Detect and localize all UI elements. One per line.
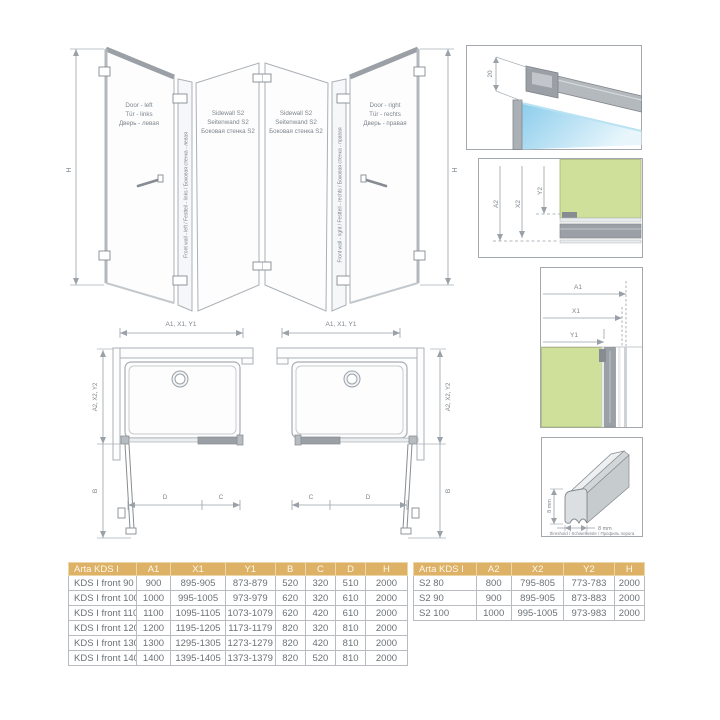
- header-cell: A2: [476, 563, 511, 576]
- svg-text:Боковая стенка S2: Боковая стенка S2: [269, 128, 323, 135]
- threshold-caption: threshold / Schwellleiste / Профиль поро…: [550, 531, 635, 536]
- detail-front-section: A1 X1 Y1: [540, 267, 643, 428]
- door-labels: Door - right Tür - rechts Дверь - правая: [363, 102, 406, 127]
- h-label: H: [452, 167, 459, 172]
- wall-green: [560, 160, 641, 219]
- table-row: KDS I front 90900895-905873-879520320510…: [69, 576, 408, 591]
- header-cell: D: [336, 563, 366, 576]
- glass-clamp-bottom: [173, 276, 187, 285]
- wall-return: [242, 358, 253, 364]
- header-cell: Arta KDS I: [414, 563, 477, 576]
- svg-text:Tür - links: Tür - links: [125, 111, 152, 118]
- table-header-row: Arta KDS I A2 X2 Y2 H: [414, 563, 645, 576]
- table-row: KDS I front 11011001095-11051073-1079620…: [69, 606, 408, 621]
- d-label: D: [163, 494, 168, 501]
- door-handle: [412, 508, 419, 518]
- diagram-plan-door-left: A1, X1, Y1: [85, 316, 270, 556]
- glass-clamp-bottom: [337, 276, 351, 285]
- dc-dimension: D C: [128, 494, 240, 510]
- glass-edge: [624, 348, 627, 428]
- detail-top-brace: 20: [466, 45, 642, 150]
- diagram-enclosure-door-right: Sidewall S2 Seitenwand S2 Боковая стенка…: [262, 36, 462, 321]
- table-row: KDS I front 14014001395-14051373-1379820…: [69, 651, 408, 666]
- h-dimension: H: [66, 49, 104, 285]
- c-label: C: [219, 494, 224, 501]
- gap-label: 20: [487, 70, 494, 78]
- b-label: B: [92, 489, 99, 493]
- glass-clamp-top: [337, 94, 351, 103]
- table-front-models: Arta KDS I A1 X1 Y1 B C D H KDS I front …: [68, 562, 408, 666]
- fixed-panel-profile: [198, 437, 241, 444]
- hinge-bottom: [99, 251, 110, 260]
- height-label: 8 mm: [547, 499, 553, 513]
- side-wall: [113, 348, 120, 460]
- width-dim-label: A1, X1, Y1: [166, 321, 197, 328]
- diagram-enclosure-door-left: H Door - left Tür - links Дверь - левая …: [62, 36, 262, 321]
- door-handle: [118, 508, 125, 518]
- svg-text:Door - left: Door - left: [125, 102, 152, 109]
- b-dimension: B: [92, 444, 131, 538]
- x1-label: X1: [572, 308, 580, 315]
- depth-dim-label: A2, X2, Y2: [93, 382, 99, 411]
- table-row: KDS I front 1001000995-1005973-979620320…: [69, 591, 408, 606]
- rail-bottom: [560, 240, 641, 243]
- corner-profile: [237, 435, 243, 445]
- wall-bracket-bottom: [253, 262, 262, 270]
- svg-text:Sidewall S2: Sidewall S2: [280, 110, 313, 117]
- hinge-bottom: [414, 251, 425, 260]
- header-cell: Y2: [564, 563, 614, 576]
- rail-right: [618, 348, 621, 428]
- sidewall-panel: [196, 63, 259, 311]
- hinge-block: [121, 436, 129, 444]
- fixed-panel-profile: [297, 437, 340, 444]
- drain: [172, 371, 188, 387]
- wall-profile: [513, 100, 522, 150]
- width-dimension: [282, 328, 400, 338]
- back-wall: [277, 348, 417, 358]
- width-dim-label: A1, X1, Y1: [326, 321, 357, 328]
- depth-dim-label: A2, X2, Y2: [446, 382, 452, 411]
- sidewall-panel: [265, 63, 328, 311]
- corner-profile: [295, 435, 301, 445]
- header-cell: H: [365, 563, 407, 576]
- wall-bracket-top: [253, 74, 262, 82]
- wall-bracket-top: [262, 74, 271, 82]
- y2-label: Y2: [537, 187, 544, 195]
- table-row: KDS I front 12012001195-12051173-1179820…: [69, 621, 408, 636]
- hinge-block: [409, 436, 417, 444]
- bottom-profile: [560, 224, 641, 238]
- svg-text:Door - right: Door - right: [370, 102, 401, 109]
- h-dimension: H: [420, 49, 459, 285]
- hinge-top: [414, 67, 425, 76]
- y1-label: Y1: [570, 332, 578, 339]
- profile-tab: [599, 349, 606, 362]
- svg-text:Дверь - левая: Дверь - левая: [119, 120, 159, 127]
- x2-label: X2: [515, 200, 522, 208]
- h-label: H: [66, 167, 73, 172]
- header-cell: B: [275, 563, 305, 576]
- drain: [344, 371, 360, 387]
- header-cell: X2: [511, 563, 563, 576]
- svg-text:Seitenwand S2: Seitenwand S2: [207, 119, 249, 126]
- svg-text:Дверь - правая: Дверь - правая: [363, 120, 406, 127]
- header-cell: C: [305, 563, 336, 576]
- open-door: [118, 444, 136, 534]
- door-panel: [350, 49, 418, 303]
- open-door: [401, 444, 419, 534]
- front-wall-label: Front wall - left / Festteil - links / Б…: [184, 132, 190, 258]
- a2-label: A2: [493, 200, 500, 208]
- header-cell: A1: [136, 563, 171, 576]
- side-wall: [417, 348, 424, 460]
- table-row: KDS I front 13013001295-13051273-1279820…: [69, 636, 408, 651]
- svg-text:Tür - rechts: Tür - rechts: [369, 111, 401, 118]
- wall-green: [542, 348, 602, 428]
- header-cell: H: [614, 563, 644, 576]
- svg-text:Seitenwand S2: Seitenwand S2: [275, 119, 317, 126]
- shower-enclosure-spec-sheet: H Door - left Tür - links Дверь - левая …: [0, 0, 720, 720]
- hinge-top: [99, 67, 110, 76]
- header-cell: Arta KDS I: [69, 563, 137, 576]
- header-cell: X1: [171, 563, 225, 576]
- wall-bracket-bottom: [262, 262, 271, 270]
- wall-return: [277, 358, 288, 364]
- detail-threshold-profile: 8 mm 8 mm threshold / Schwellleiste / Пр…: [541, 437, 643, 537]
- b-label: B: [445, 489, 452, 493]
- profile-tab: [562, 212, 577, 218]
- c-label: C: [309, 494, 314, 501]
- rail-top: [560, 218, 641, 222]
- svg-text:Sidewall S2: Sidewall S2: [212, 110, 245, 117]
- back-wall: [113, 348, 253, 358]
- table-row: S2 1001000995-1005973-9832000: [414, 606, 645, 621]
- glass-clamp-top: [173, 94, 187, 103]
- d-label: D: [366, 494, 371, 501]
- table-sidewall-models: Arta KDS I A2 X2 Y2 H S2 80800795-805773…: [413, 562, 645, 621]
- table-header-row: Arta KDS I A1 X1 Y1 B C D H: [69, 563, 408, 576]
- b-dimension: B: [408, 444, 452, 538]
- detail-sidewall-section: A2 X2 Y2: [478, 158, 643, 258]
- cd-dimension: C D: [292, 494, 407, 510]
- front-wall-label: Front wall - right / Festteil - rechts /…: [338, 127, 344, 262]
- width-dimension: [120, 328, 243, 338]
- door-panel: [106, 49, 174, 303]
- table-row: S2 90900895-905873-8832000: [414, 591, 645, 606]
- header-cell: Y1: [225, 563, 275, 576]
- diagram-plan-door-right: A1, X1, Y1: [268, 316, 468, 556]
- svg-text:Боковая стенка S2: Боковая стенка S2: [201, 128, 255, 135]
- table-row: S2 80800795-805773-7832000: [414, 576, 645, 591]
- a1-label: A1: [574, 284, 582, 291]
